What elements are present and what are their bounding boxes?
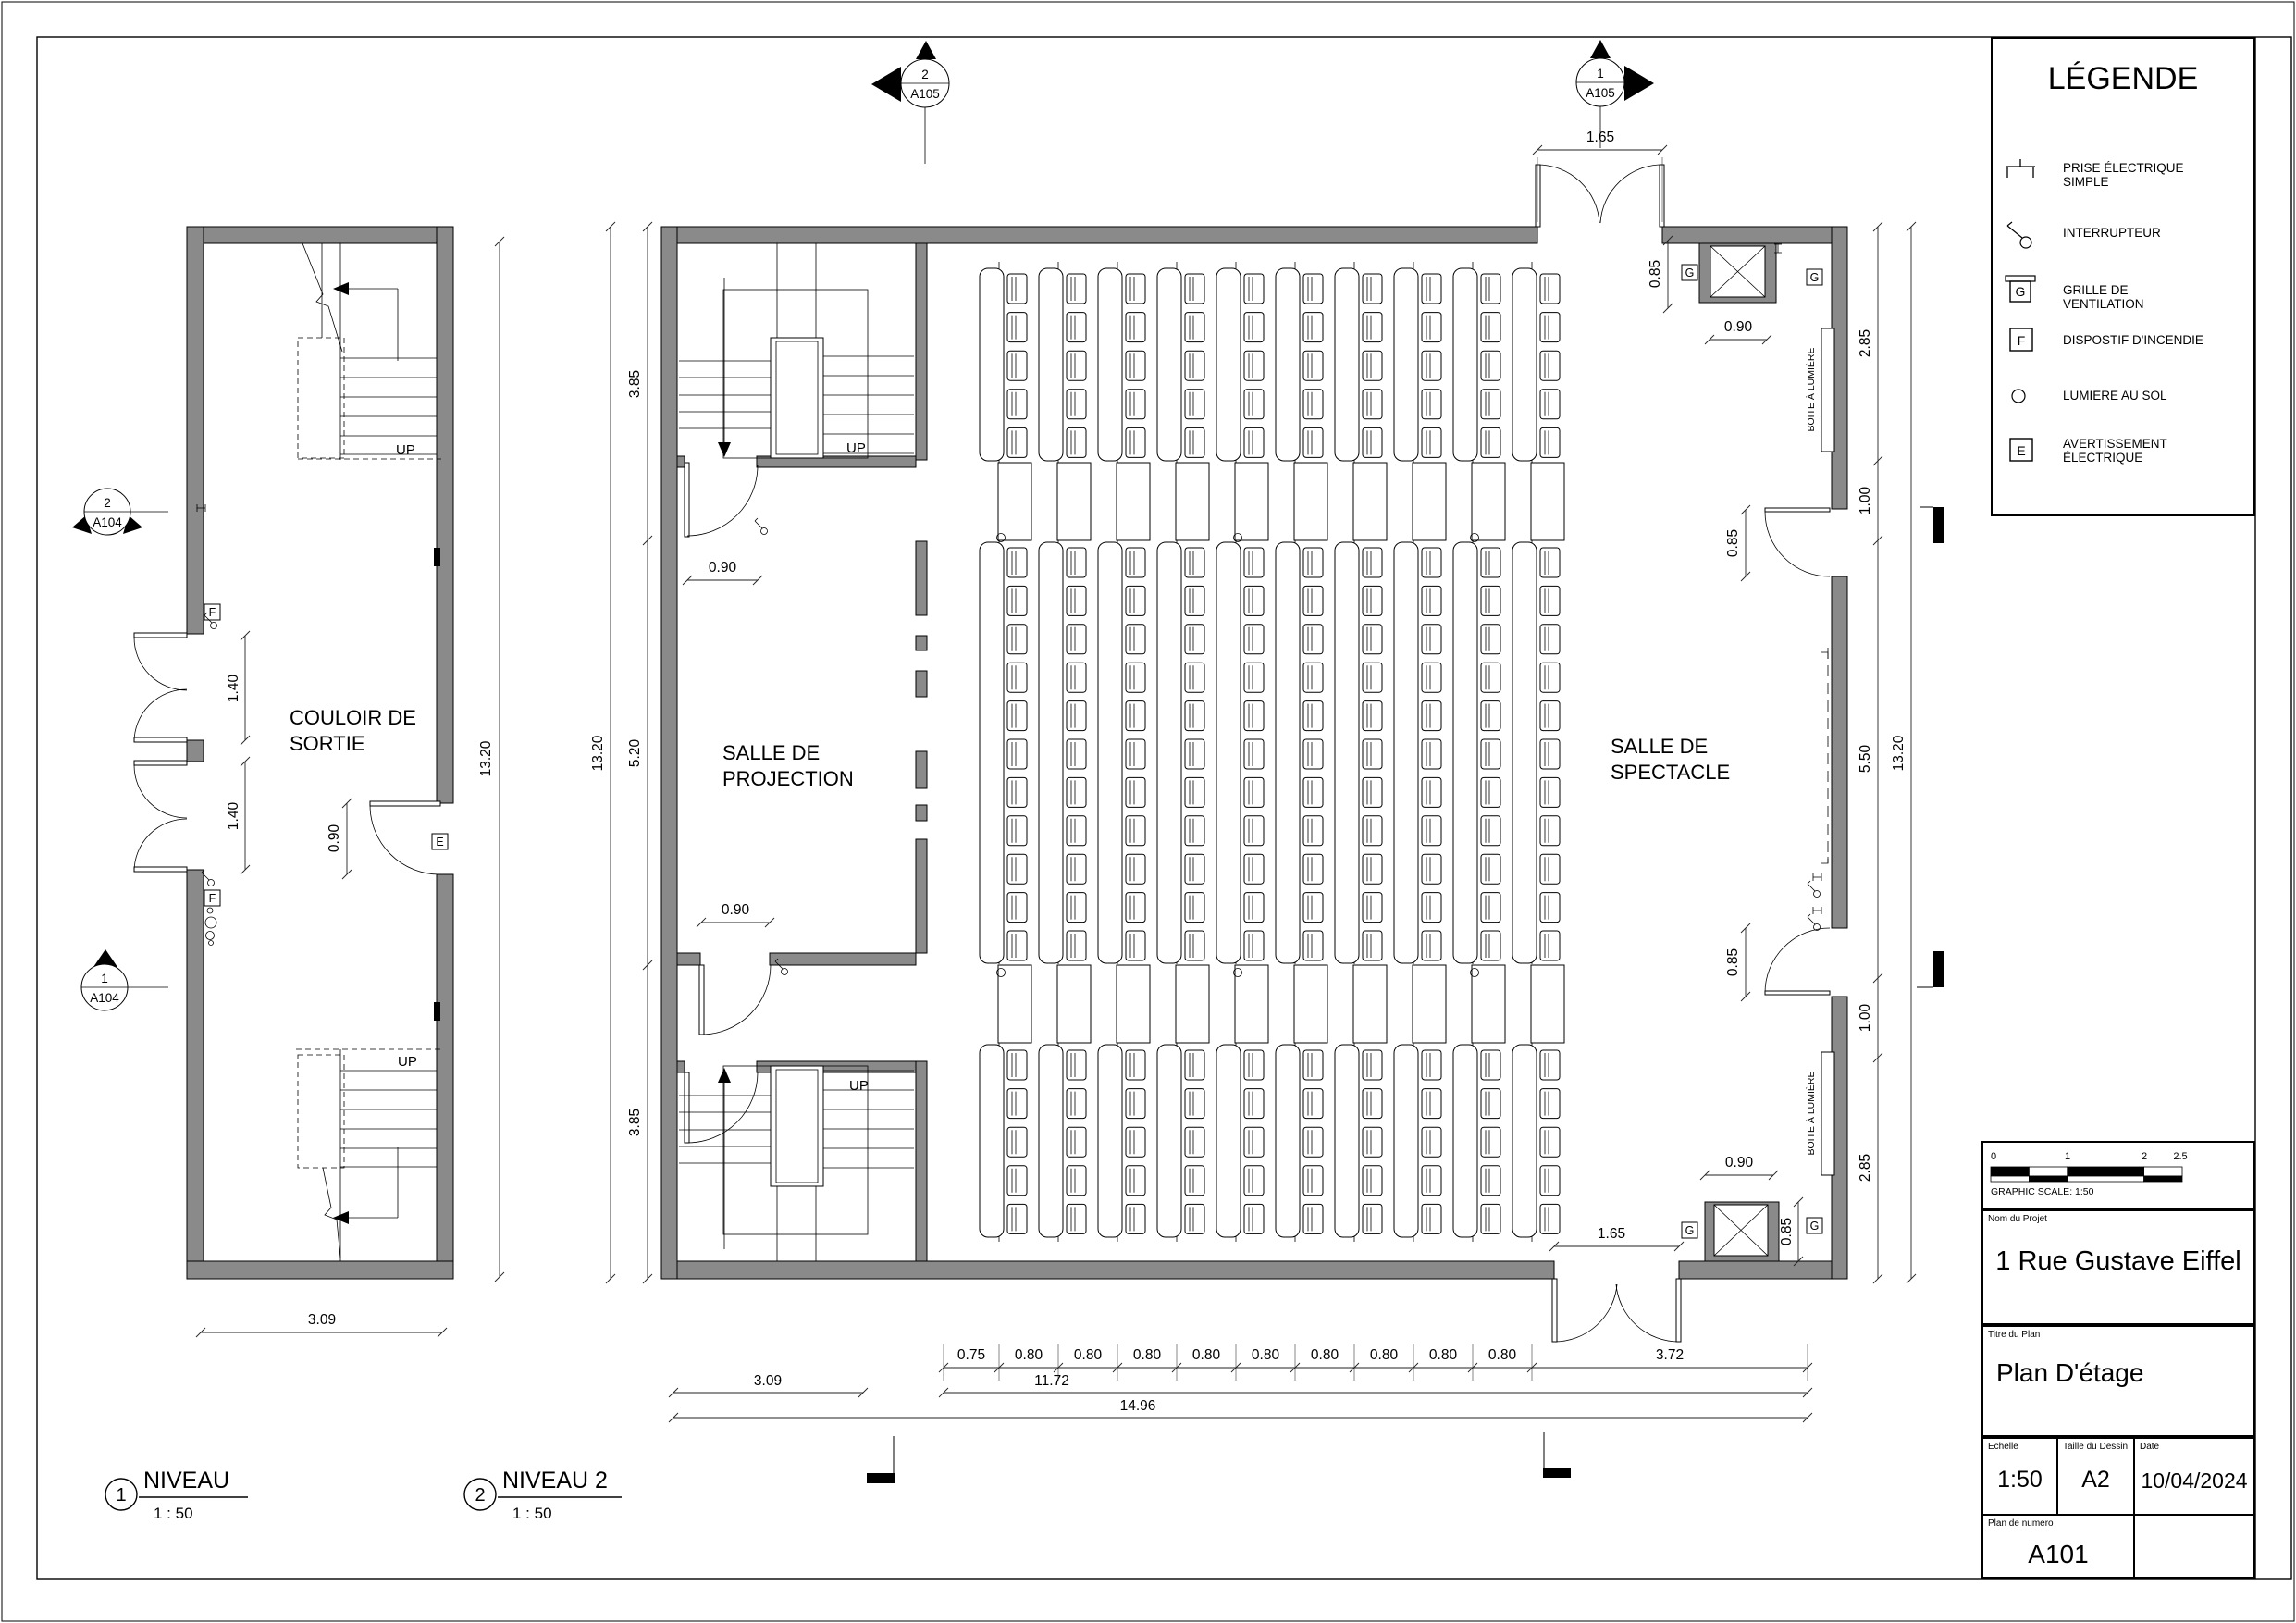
seat-column bbox=[1335, 262, 1387, 1247]
seat bbox=[1007, 351, 1027, 380]
wall bbox=[661, 227, 1537, 243]
seat bbox=[1481, 313, 1500, 342]
wall bbox=[677, 953, 700, 965]
seat bbox=[1185, 663, 1204, 692]
graphic-scale-bar: 0 1 2 2.5 GRAPHIC SCALE: 1:50 bbox=[1983, 1143, 2253, 1208]
view-number: 1 bbox=[116, 1485, 126, 1505]
seat bbox=[1303, 548, 1323, 577]
seat bbox=[1185, 313, 1204, 342]
seat bbox=[1067, 816, 1086, 846]
seat bbox=[1185, 739, 1204, 769]
view-title-niveau2: 2 NIVEAU 2 1 : 50 bbox=[464, 1468, 622, 1522]
fire-device-icon: F bbox=[2000, 324, 2041, 355]
seat bbox=[1185, 816, 1204, 846]
wall bbox=[187, 870, 204, 1261]
view-title-niveau1: 1 NIVEAU 1 : 50 bbox=[105, 1468, 248, 1522]
legend-item-label: PRISE ÉLECTRIQUE SIMPLE bbox=[2063, 161, 2211, 189]
seat bbox=[1422, 777, 1441, 807]
wall bbox=[1662, 227, 1847, 243]
seat-table bbox=[998, 965, 1031, 1043]
seat bbox=[1067, 663, 1086, 692]
scale-label: Echelle bbox=[1988, 1442, 2018, 1452]
sheet-size-label: Taille du Dessin bbox=[2063, 1442, 2128, 1452]
seat bbox=[1067, 625, 1086, 654]
seat bbox=[1007, 1166, 1027, 1196]
seat bbox=[1126, 663, 1145, 692]
section-marker-1-A104: 1 A104 bbox=[81, 949, 168, 1010]
seat-desk bbox=[1039, 268, 1063, 461]
seat bbox=[1126, 625, 1145, 654]
seat bbox=[1244, 663, 1264, 692]
scale-tick: 1 bbox=[2065, 1151, 2070, 1162]
door-leaf bbox=[1765, 508, 1830, 512]
seat bbox=[1007, 739, 1027, 769]
light-box bbox=[1821, 328, 1834, 452]
scale-cell: Echelle 1:50 bbox=[1981, 1437, 2058, 1516]
seat bbox=[1067, 1127, 1086, 1157]
dimension-label: 11.72 bbox=[1034, 1373, 1069, 1389]
plan-number-value: A101 bbox=[1983, 1540, 2133, 1569]
seat bbox=[1481, 586, 1500, 615]
seat bbox=[1126, 931, 1145, 960]
seat bbox=[1422, 1166, 1441, 1196]
door-arc bbox=[687, 465, 758, 536]
vent-grille-label: G bbox=[1810, 1220, 1820, 1233]
floor-light-icon bbox=[206, 932, 215, 940]
seat bbox=[1185, 274, 1204, 304]
section-marker-2-A105: 2 A105 bbox=[871, 41, 949, 164]
switch-icon bbox=[2000, 220, 2041, 252]
seat-table bbox=[1294, 463, 1327, 540]
stair-up-label: UP bbox=[396, 442, 415, 458]
legend-item: PRISE ÉLECTRIQUE SIMPLE bbox=[1993, 155, 2253, 202]
room-label-spectacle2: SPECTACLE bbox=[1611, 761, 1730, 784]
seat bbox=[1126, 548, 1145, 577]
seat-column bbox=[1512, 262, 1564, 1247]
seat bbox=[1067, 1204, 1086, 1233]
seat bbox=[1363, 1204, 1382, 1233]
seat bbox=[1363, 427, 1382, 457]
seat bbox=[1363, 777, 1382, 807]
seat bbox=[1481, 701, 1500, 731]
dimension-label: 1.65 bbox=[1586, 130, 1614, 145]
seat bbox=[1363, 1089, 1382, 1119]
seat bbox=[1363, 931, 1382, 960]
seat bbox=[1126, 1127, 1145, 1157]
floor-plan-canvas: F F E UP UP bbox=[0, 0, 2296, 1623]
floor-light-icon bbox=[209, 941, 214, 946]
door-arc bbox=[134, 689, 187, 742]
sheet-size-value: A2 bbox=[2058, 1467, 2133, 1493]
seat-table bbox=[1472, 965, 1505, 1043]
seat bbox=[1007, 663, 1027, 692]
scale-tick: 2.5 bbox=[2173, 1151, 2187, 1162]
page-edge-border bbox=[2, 2, 2294, 1621]
seat-column bbox=[1453, 262, 1505, 1247]
seat bbox=[1007, 931, 1027, 960]
door-arc bbox=[370, 805, 439, 874]
seat bbox=[1185, 1089, 1204, 1119]
seat-desk bbox=[1276, 1045, 1300, 1237]
dimension-label: 2.85 bbox=[1858, 1154, 1873, 1182]
seat bbox=[1481, 854, 1500, 884]
seat-desk bbox=[1098, 1045, 1122, 1237]
seat bbox=[1185, 893, 1204, 923]
seat bbox=[1303, 816, 1323, 846]
seat bbox=[1244, 274, 1264, 304]
seat bbox=[1422, 893, 1441, 923]
seat bbox=[1481, 1204, 1500, 1233]
seat-desk bbox=[980, 268, 1004, 461]
date-cell: Date 10/04/2024 bbox=[2133, 1437, 2255, 1516]
seat bbox=[1007, 701, 1027, 731]
wall bbox=[916, 1061, 927, 1261]
plan-title-box: Titre du Plan Plan D'étage bbox=[1981, 1325, 2255, 1437]
seat bbox=[1422, 663, 1441, 692]
wall bbox=[187, 1261, 453, 1279]
seat bbox=[1007, 1050, 1027, 1080]
plan-number-cell: Plan de numero A101 bbox=[1981, 1514, 2135, 1579]
seat bbox=[1481, 351, 1500, 380]
seat bbox=[1007, 816, 1027, 846]
wall bbox=[916, 671, 927, 697]
door-arc bbox=[701, 965, 771, 1035]
door-arc bbox=[134, 819, 187, 872]
seat bbox=[1244, 1127, 1264, 1157]
seat bbox=[1422, 854, 1441, 884]
seat-table bbox=[1413, 965, 1446, 1043]
seat-table bbox=[1176, 463, 1209, 540]
seat bbox=[1303, 1166, 1323, 1196]
seat bbox=[1481, 390, 1500, 419]
dim-label: 0.80 bbox=[1370, 1347, 1399, 1363]
seat bbox=[1303, 427, 1323, 457]
door-leaf bbox=[685, 1072, 689, 1143]
seat bbox=[1481, 739, 1500, 769]
dimension-label: 0.90 bbox=[709, 560, 737, 576]
seat bbox=[1303, 931, 1323, 960]
seat bbox=[1540, 427, 1560, 457]
seat bbox=[1126, 274, 1145, 304]
view-name: NIVEAU 2 bbox=[502, 1468, 608, 1493]
stairs-up: UP bbox=[296, 1049, 441, 1261]
seat bbox=[1185, 777, 1204, 807]
seat bbox=[1422, 816, 1441, 846]
auditorium-seating bbox=[980, 262, 1564, 1247]
seat bbox=[1422, 586, 1441, 615]
seat bbox=[1007, 777, 1027, 807]
seat bbox=[1126, 893, 1145, 923]
seat bbox=[1185, 1204, 1204, 1233]
room-label-couloir: COULOIR DE bbox=[290, 706, 416, 729]
legend-item: G GRILLE DE VENTILATION bbox=[1993, 272, 2253, 318]
seat bbox=[1303, 854, 1323, 884]
dim-label: 0.80 bbox=[1192, 1347, 1221, 1363]
seat bbox=[1007, 586, 1027, 615]
seat bbox=[1540, 701, 1560, 731]
seat-desk bbox=[1157, 1045, 1181, 1237]
seat-column bbox=[1276, 262, 1327, 1247]
door-leaf bbox=[699, 965, 704, 1035]
project-name-box: Nom du Projet 1 Rue Gustave Eiffel bbox=[1981, 1209, 2255, 1325]
project-name-value: 1 Rue Gustave Eiffel bbox=[1983, 1246, 2253, 1277]
dimension-label: 5.20 bbox=[627, 739, 643, 768]
seat bbox=[1185, 1166, 1204, 1196]
seat bbox=[1067, 1050, 1086, 1080]
wall bbox=[661, 227, 677, 1279]
seat bbox=[1126, 427, 1145, 457]
scale-tick: 2 bbox=[2142, 1151, 2147, 1162]
project-name-label: Nom du Projet bbox=[1988, 1214, 2047, 1224]
legend-item: E AVERTISSEMENT ÉLECTRIQUE bbox=[1993, 431, 2253, 487]
seat-desk bbox=[1335, 268, 1359, 461]
seat bbox=[1540, 663, 1560, 692]
dimension-label: 1.40 bbox=[226, 675, 241, 703]
seat bbox=[1422, 313, 1441, 342]
door-leaf bbox=[1660, 165, 1664, 227]
seat bbox=[1185, 931, 1204, 960]
dimension-label: 13.20 bbox=[590, 735, 606, 771]
seat bbox=[1244, 586, 1264, 615]
seat bbox=[1303, 893, 1323, 923]
door-leaf bbox=[1765, 991, 1830, 995]
seat bbox=[1540, 1089, 1560, 1119]
seat bbox=[1363, 351, 1382, 380]
seat-table bbox=[1235, 965, 1268, 1043]
room-label-spectacle: SALLE DE bbox=[1611, 735, 1708, 758]
seat bbox=[1244, 427, 1264, 457]
seat bbox=[1540, 586, 1560, 615]
seat bbox=[1126, 1050, 1145, 1080]
seat-table bbox=[1531, 965, 1564, 1043]
seat bbox=[1481, 777, 1500, 807]
fire-device-label: F bbox=[209, 606, 216, 619]
seat bbox=[1540, 390, 1560, 419]
seat bbox=[1481, 1166, 1500, 1196]
stairs-up: UP bbox=[298, 243, 441, 460]
vent-grille-label: G bbox=[1810, 271, 1820, 284]
seat bbox=[1126, 313, 1145, 342]
stair-direction-arrow-icon bbox=[333, 1211, 349, 1224]
seat bbox=[1126, 586, 1145, 615]
seat bbox=[1007, 893, 1027, 923]
seat-table bbox=[1117, 965, 1150, 1043]
seat-desk bbox=[1394, 1045, 1418, 1237]
svg-text:A105: A105 bbox=[1586, 86, 1615, 100]
door-leaf bbox=[134, 867, 187, 872]
wall bbox=[916, 636, 927, 650]
seat bbox=[1540, 893, 1560, 923]
seat bbox=[1363, 893, 1382, 923]
seat bbox=[1244, 625, 1264, 654]
door-leaf bbox=[134, 633, 187, 638]
seat bbox=[1363, 1127, 1382, 1157]
seat bbox=[1540, 313, 1560, 342]
seat bbox=[1244, 854, 1264, 884]
seat-desk bbox=[1512, 542, 1537, 963]
door-leaf bbox=[370, 801, 440, 806]
wall bbox=[916, 751, 927, 788]
door-leaf bbox=[1536, 165, 1540, 227]
seat bbox=[1422, 1127, 1441, 1157]
stair-up-label: UP bbox=[846, 440, 866, 456]
seat-desk bbox=[1216, 268, 1241, 461]
seat bbox=[1185, 854, 1204, 884]
electric-warning-icon: E bbox=[2000, 431, 2041, 465]
seat-desk bbox=[1512, 268, 1537, 461]
wall bbox=[916, 541, 927, 615]
seat bbox=[1067, 777, 1086, 807]
seat bbox=[1067, 1166, 1086, 1196]
dim-label: 3.72 bbox=[1656, 1347, 1684, 1363]
light-box-label: BOITE À LUMIÈRE bbox=[1805, 347, 1817, 431]
date-value: 10/04/2024 bbox=[2135, 1468, 2253, 1493]
seat bbox=[1126, 816, 1145, 846]
seat-desk bbox=[980, 1045, 1004, 1237]
seat bbox=[1481, 1127, 1500, 1157]
floor-light-icon bbox=[205, 917, 216, 928]
seat bbox=[1007, 427, 1027, 457]
seat-table bbox=[1472, 463, 1505, 540]
seat bbox=[1244, 313, 1264, 342]
seat bbox=[1185, 548, 1204, 577]
seat bbox=[1126, 777, 1145, 807]
drawing-sheet: F F E UP UP bbox=[0, 0, 2296, 1623]
seat bbox=[1126, 854, 1145, 884]
dim-label: 0.80 bbox=[1311, 1347, 1339, 1363]
seat bbox=[1303, 390, 1323, 419]
seat-desk bbox=[1216, 542, 1241, 963]
seat bbox=[1244, 1204, 1264, 1233]
seat bbox=[1126, 701, 1145, 731]
seat bbox=[1126, 1089, 1145, 1119]
seat bbox=[1067, 586, 1086, 615]
seat bbox=[1185, 625, 1204, 654]
seat-desk bbox=[1394, 268, 1418, 461]
seat bbox=[1540, 1050, 1560, 1080]
wall bbox=[916, 243, 927, 460]
seat bbox=[1422, 1050, 1441, 1080]
view-name: NIVEAU bbox=[143, 1468, 229, 1493]
switch-icon bbox=[1808, 881, 1821, 898]
seat bbox=[1244, 1089, 1264, 1119]
seat bbox=[1540, 1127, 1560, 1157]
seat bbox=[1185, 701, 1204, 731]
seat bbox=[1481, 893, 1500, 923]
wall-notch bbox=[434, 548, 440, 566]
seat-desk bbox=[1098, 268, 1122, 461]
seat-column bbox=[1039, 262, 1091, 1247]
wall-notch bbox=[434, 1002, 440, 1021]
seat-desk bbox=[1157, 268, 1181, 461]
seat bbox=[1422, 739, 1441, 769]
outlet-icon bbox=[2000, 155, 2041, 187]
seat bbox=[1007, 548, 1027, 577]
seat bbox=[1363, 1050, 1382, 1080]
seat bbox=[1185, 427, 1204, 457]
dim-label: 0.80 bbox=[1133, 1347, 1162, 1363]
stairs-up: UP bbox=[718, 243, 868, 458]
svg-text:1: 1 bbox=[1597, 67, 1604, 81]
seat bbox=[1007, 313, 1027, 342]
seat bbox=[1363, 313, 1382, 342]
dim-label: 0.75 bbox=[957, 1347, 985, 1363]
seat bbox=[1185, 1127, 1204, 1157]
svg-text:E: E bbox=[2017, 443, 2025, 458]
legend-item-label: GRILLE DE VENTILATION bbox=[2063, 283, 2211, 311]
seat-table bbox=[1057, 463, 1091, 540]
switch-icon bbox=[1808, 914, 1821, 931]
seat bbox=[1422, 931, 1441, 960]
wall bbox=[1832, 576, 1847, 928]
dimension-label: 13.20 bbox=[478, 740, 494, 776]
seat bbox=[1244, 816, 1264, 846]
electric-warning-label: E bbox=[436, 836, 443, 849]
seat bbox=[1126, 739, 1145, 769]
vent-grille-icon: G bbox=[2000, 272, 2041, 309]
dim-label: 0.80 bbox=[1488, 1347, 1517, 1363]
plan1-niveau1: F F E UP UP bbox=[72, 227, 494, 1328]
door-arc bbox=[1600, 165, 1662, 223]
legend-item: F DISPOSTIF D'INCENDIE bbox=[1993, 324, 2253, 370]
door-leaf bbox=[134, 737, 187, 742]
svg-text:G: G bbox=[2016, 284, 2026, 299]
seat bbox=[1244, 1050, 1264, 1080]
door-arc bbox=[1765, 512, 1830, 576]
seat-desk bbox=[1512, 1045, 1537, 1237]
seat bbox=[1540, 854, 1560, 884]
seat bbox=[1481, 274, 1500, 304]
switch-icon bbox=[755, 518, 768, 535]
seat-table bbox=[1176, 965, 1209, 1043]
fire-device-label: F bbox=[209, 892, 216, 905]
seat bbox=[1126, 1166, 1145, 1196]
seat bbox=[1481, 931, 1500, 960]
svg-text:A104: A104 bbox=[90, 991, 119, 1005]
seat-desk bbox=[1098, 542, 1122, 963]
seat bbox=[1244, 931, 1264, 960]
seat bbox=[1540, 274, 1560, 304]
seat-column bbox=[1157, 262, 1209, 1247]
seat bbox=[1481, 625, 1500, 654]
wall bbox=[677, 1061, 685, 1072]
seat-desk bbox=[1276, 542, 1300, 963]
stair-up-label: UP bbox=[398, 1054, 417, 1070]
dimension-label: 0.85 bbox=[1725, 529, 1741, 557]
room-label-projection: SALLE DE bbox=[722, 741, 820, 764]
seat bbox=[1540, 1166, 1560, 1196]
seat-desk bbox=[1039, 1045, 1063, 1237]
seat bbox=[1303, 351, 1323, 380]
seat bbox=[1185, 390, 1204, 419]
dimension-label: 14.96 bbox=[1120, 1398, 1156, 1414]
legend-item-label: INTERRUPTEUR bbox=[2063, 226, 2211, 240]
dimension-label: 13.20 bbox=[1891, 735, 1907, 771]
seat bbox=[1303, 274, 1323, 304]
seat-table bbox=[998, 463, 1031, 540]
floor-light-icon bbox=[207, 908, 213, 913]
plan2-niveau2: G G G G BOITE À LUMIÈRE BOITE À LUMIÈRE … bbox=[590, 40, 1944, 1483]
seat bbox=[1363, 739, 1382, 769]
seat-column bbox=[1098, 262, 1150, 1247]
seat bbox=[1422, 427, 1441, 457]
dimension-label: 0.85 bbox=[1725, 948, 1741, 976]
seat-column bbox=[1394, 262, 1446, 1247]
wall bbox=[437, 227, 453, 803]
seat bbox=[1303, 586, 1323, 615]
seat bbox=[1303, 1089, 1323, 1119]
dimension-label: 5.50 bbox=[1858, 745, 1873, 774]
